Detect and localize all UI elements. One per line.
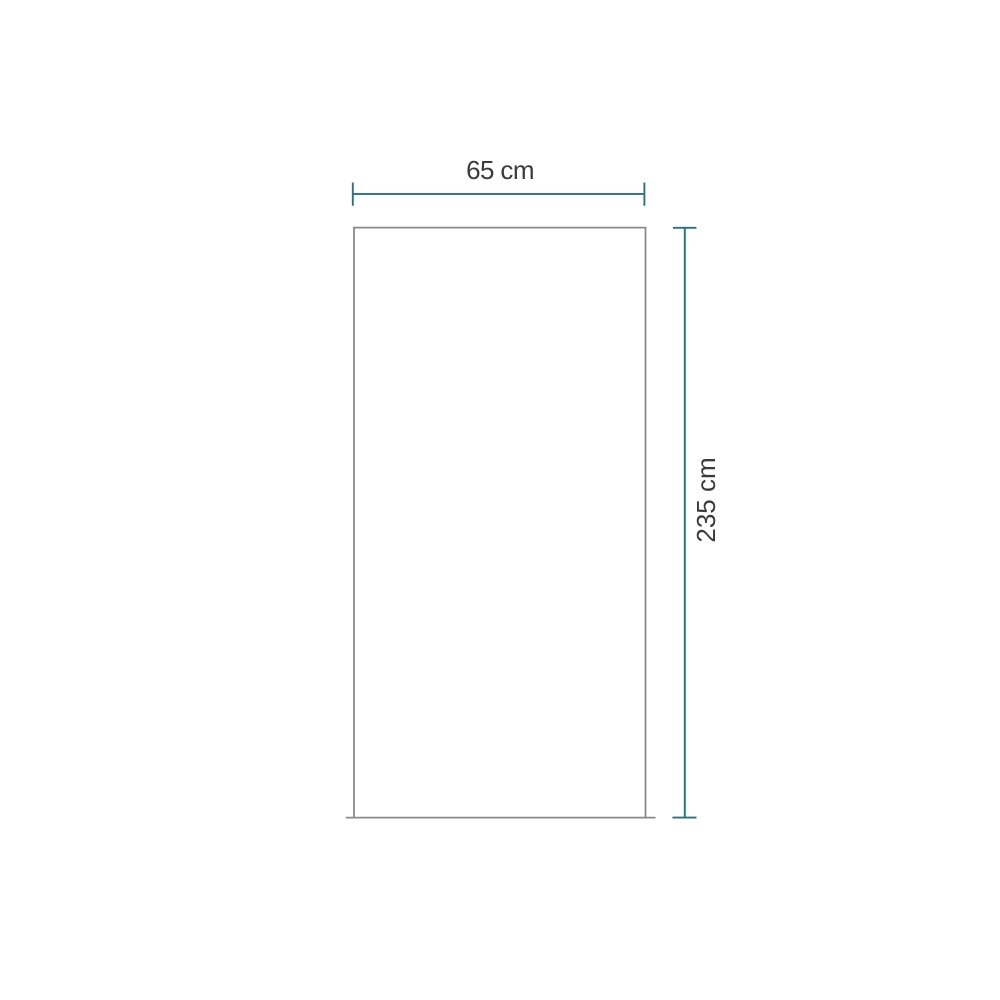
svg-text:235 cm: 235 cm	[691, 457, 721, 542]
svg-text:65 cm: 65 cm	[466, 155, 534, 185]
